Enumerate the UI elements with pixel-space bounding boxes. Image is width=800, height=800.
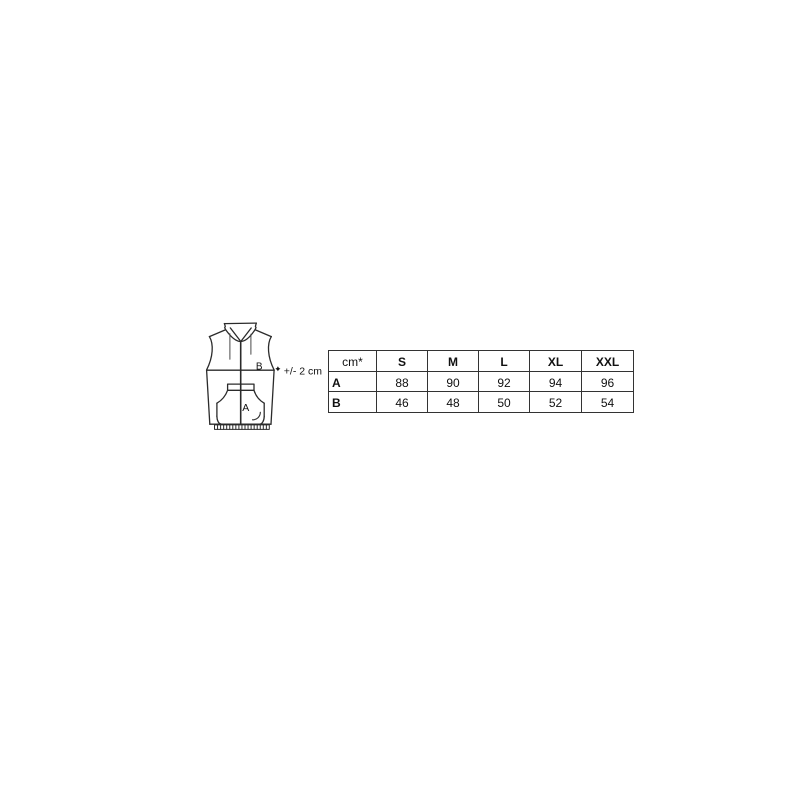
svg-text:B: B xyxy=(256,361,263,372)
svg-text:+/- 2 cm: +/- 2 cm xyxy=(284,366,322,378)
svg-text:A: A xyxy=(242,402,249,414)
